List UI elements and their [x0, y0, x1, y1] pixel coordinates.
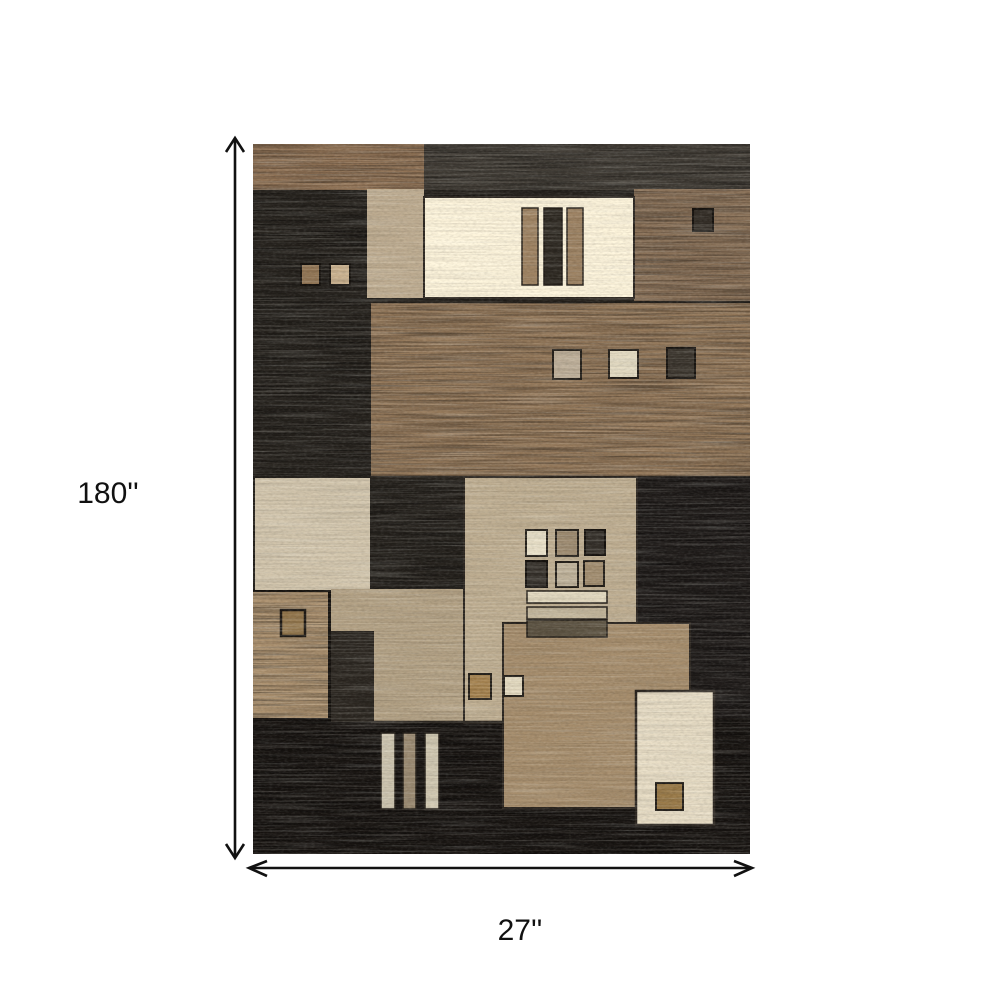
svg-text:27'': 27'' [498, 914, 543, 947]
svg-text:180'': 180'' [77, 477, 139, 510]
